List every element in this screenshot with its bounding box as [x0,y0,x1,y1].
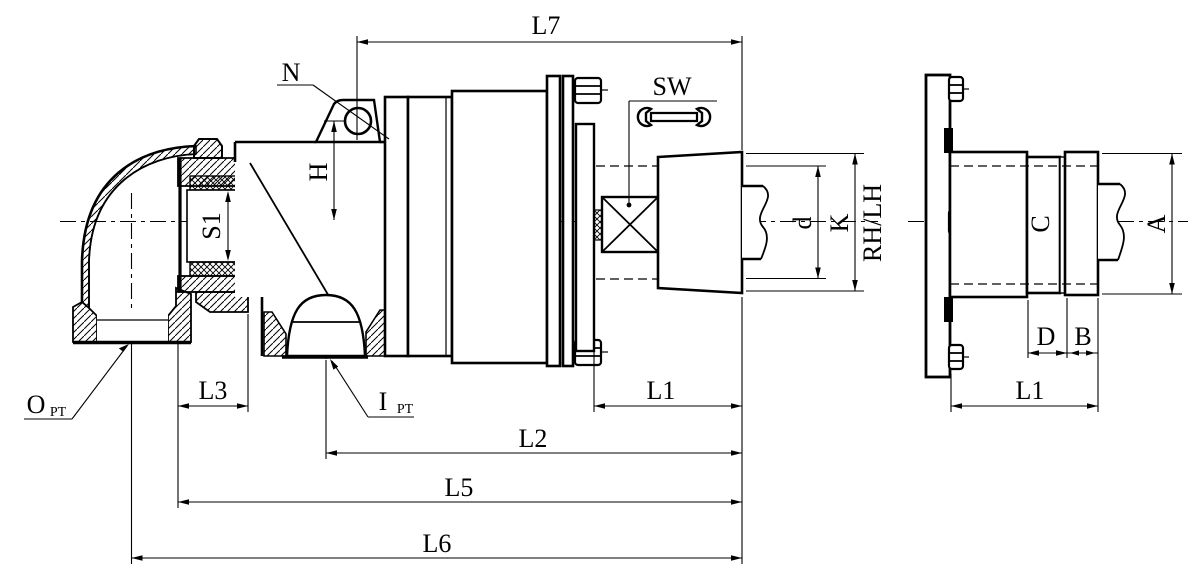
dim-label-l3: L3 [199,376,228,405]
dim-label-l1-side: L1 [1016,376,1045,405]
dim-l5: L5 [178,473,742,505]
dim-label-sw: SW [653,72,692,101]
side-bolt-top [949,77,969,101]
outlet-boss-right-wall [168,288,191,342]
outlet-port-callout: O PT [24,344,129,420]
dim-label-d: d [788,217,817,230]
sw-leader-dot [627,203,632,208]
dim-label-k: K [825,213,854,232]
side-ring-b [1065,152,1098,295]
side-flange-step-top [944,128,953,153]
side-flange-step-bottom [944,297,953,322]
dim-l2: L2 [326,360,742,459]
side-flange-plate [926,75,950,377]
dim-l1-front: L1 [594,297,742,564]
o-leader-arrow [119,344,129,352]
dim-b-side: B [1067,298,1098,412]
dim-label-l7: L7 [532,11,561,40]
flange-gasket-ring [563,76,573,366]
cap-cylinder [452,91,547,363]
dim-label-l6: L6 [423,529,452,558]
dim-label-l1-front: L1 [647,376,676,405]
side-hub [950,152,1027,297]
taper-thread-nipple [658,152,742,293]
hub-ring [576,124,594,351]
shaft-assembly [594,152,768,293]
collar-ring [385,97,408,356]
dim-l1-side: L1 [951,374,1098,412]
flange-bolt-top [575,78,608,103]
thread-direction-label: RH/LH [858,184,887,262]
housing-body [235,100,396,357]
dim-label-l5: L5 [445,473,474,502]
side-view: C A D B L1 [908,75,1188,412]
outlet-boss-left-wall [73,302,97,342]
dim-label-a: A [1142,214,1171,233]
inlet-port-callout: I PT [330,359,414,417]
dim-label-b-side: B [1074,322,1091,351]
inlet-dome-cavity [287,295,365,356]
port-label-i-sub: PT [397,402,414,417]
dim-label-h: H [304,162,333,181]
outlet-bore [97,308,168,342]
mount-hole-circle [345,108,371,134]
port-label-o-sub: PT [50,405,67,420]
dim-label-n: N [282,58,301,87]
dim-label-c: C [1026,215,1055,232]
dim-label-d-side: D [1037,322,1056,351]
dim-label-l2: L2 [519,424,548,453]
drawing-page: S1 [0,0,1200,582]
front-view: S1 [24,11,887,564]
thread-engagement [594,210,602,240]
pipe-stub-collar [194,139,222,158]
dim-label-s1: S1 [197,212,226,239]
dim-d-side: D [1028,298,1067,358]
wrench-icon [638,108,710,126]
port-label-i: I [379,387,388,416]
side-bolt-bottom [949,345,969,369]
rotary-joint-drawing: S1 [0,0,1200,582]
inlet-boss-left-wall [264,312,286,356]
flange-plate [547,76,560,366]
port-label-o: O [27,390,46,419]
